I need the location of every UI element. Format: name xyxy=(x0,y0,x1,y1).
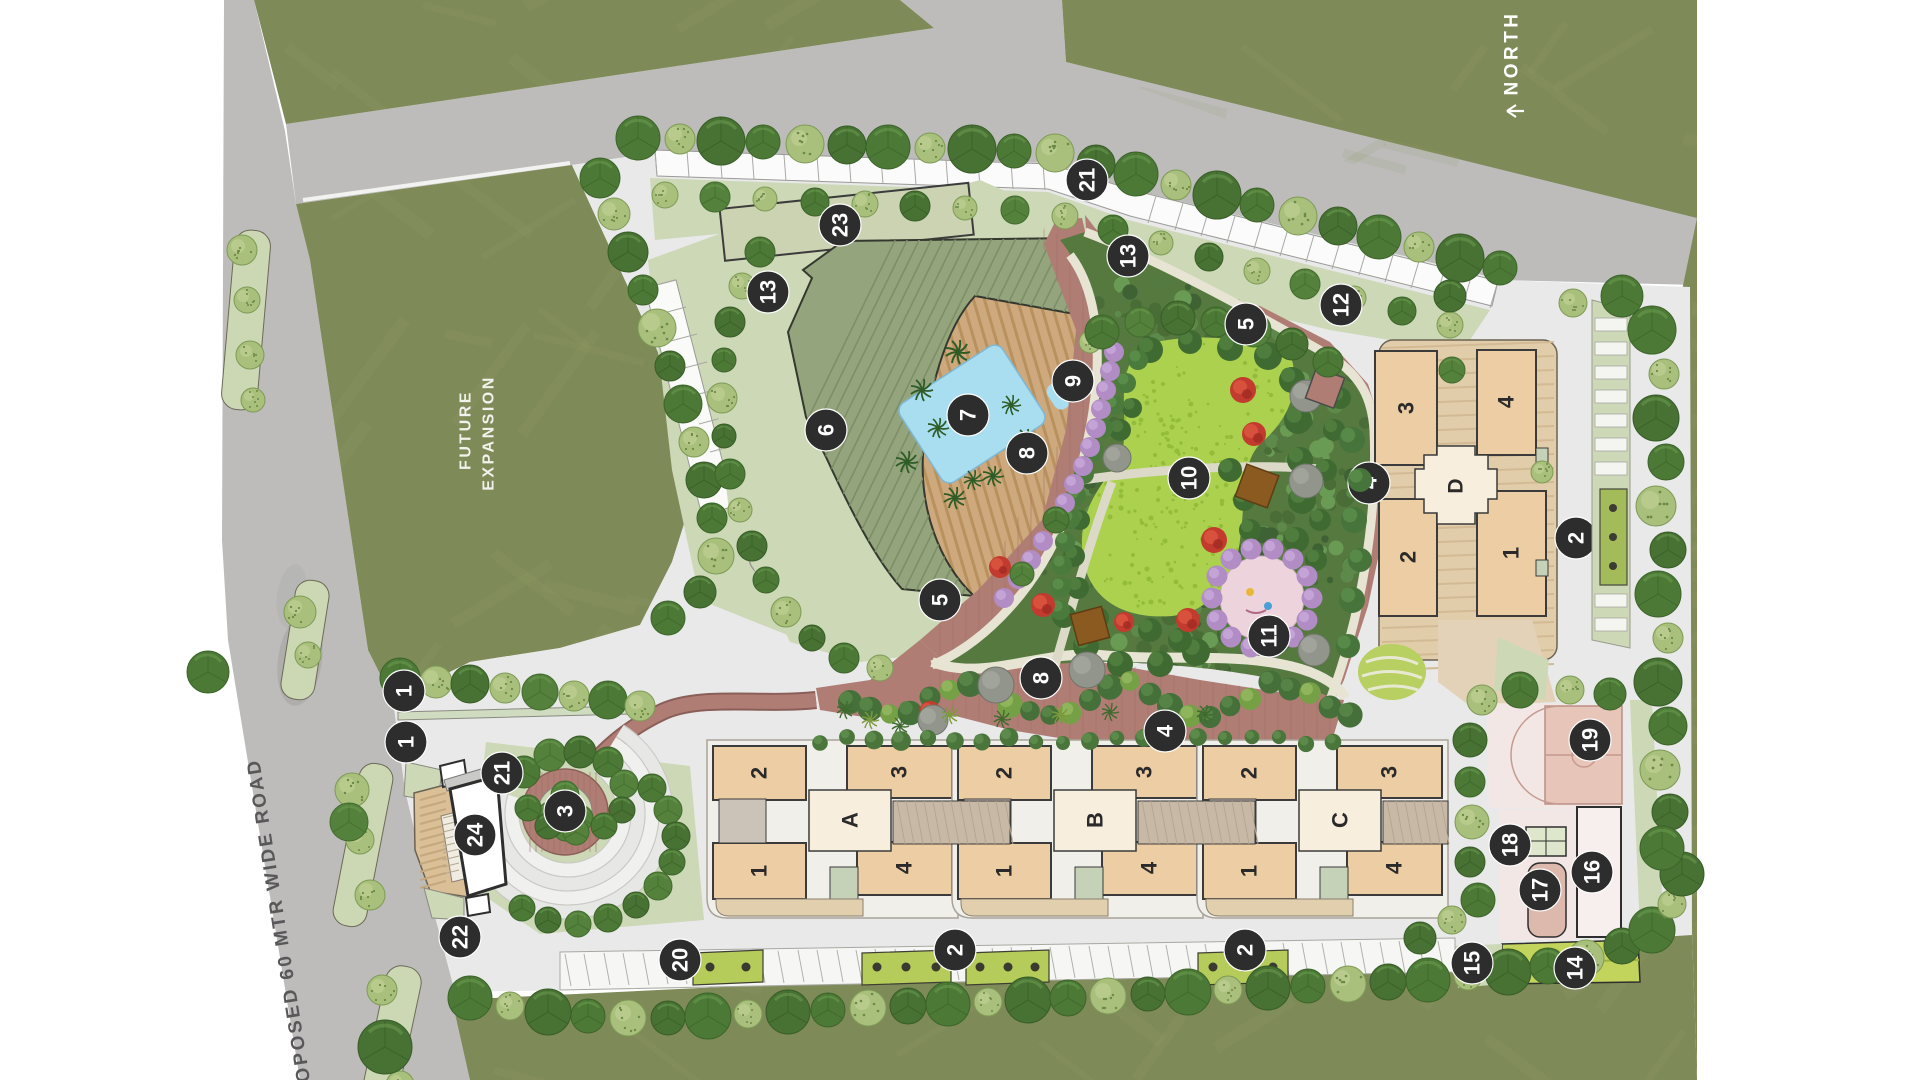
svg-text:3: 3 xyxy=(1377,766,1402,778)
svg-text:1: 1 xyxy=(392,685,417,697)
svg-text:5: 5 xyxy=(928,594,953,606)
svg-text:12: 12 xyxy=(1329,293,1354,317)
svg-text:2: 2 xyxy=(747,767,772,779)
svg-text:2: 2 xyxy=(992,767,1017,779)
svg-text:2: 2 xyxy=(943,944,968,956)
svg-text:NORTH: NORTH xyxy=(1502,10,1523,95)
svg-text:2: 2 xyxy=(1564,532,1589,544)
svg-text:9: 9 xyxy=(1061,375,1086,387)
svg-text:4: 4 xyxy=(892,861,917,874)
svg-text:A: A xyxy=(838,812,863,828)
svg-text:13: 13 xyxy=(756,280,781,304)
svg-text:6: 6 xyxy=(814,424,839,436)
svg-text:20: 20 xyxy=(668,948,693,972)
svg-text:23: 23 xyxy=(828,213,853,237)
svg-text:24: 24 xyxy=(463,822,488,847)
svg-text:5: 5 xyxy=(1234,318,1259,330)
svg-text:21: 21 xyxy=(1075,168,1100,192)
svg-text:14: 14 xyxy=(1563,955,1588,980)
svg-text:4: 4 xyxy=(1137,861,1162,874)
svg-text:4: 4 xyxy=(1153,724,1178,737)
svg-text:19: 19 xyxy=(1578,728,1603,752)
svg-text:1: 1 xyxy=(394,736,419,748)
svg-text:FUTURE: FUTURE xyxy=(458,390,475,470)
svg-text:8: 8 xyxy=(1029,672,1054,684)
svg-text:EXPANSION: EXPANSION xyxy=(481,375,498,491)
svg-text:2: 2 xyxy=(1237,767,1262,779)
svg-text:13: 13 xyxy=(1116,244,1141,268)
svg-text:1: 1 xyxy=(1499,547,1524,559)
svg-text:3: 3 xyxy=(1132,766,1157,778)
svg-text:1: 1 xyxy=(1237,865,1262,877)
svg-text:15: 15 xyxy=(1460,951,1485,975)
svg-text:2: 2 xyxy=(1233,944,1258,956)
svg-text:1: 1 xyxy=(992,865,1017,877)
svg-text:18: 18 xyxy=(1498,833,1523,857)
svg-text:2: 2 xyxy=(1396,551,1421,563)
svg-text:D: D xyxy=(1445,478,1468,493)
svg-text:22: 22 xyxy=(448,925,473,949)
svg-text:16: 16 xyxy=(1580,860,1605,884)
svg-text:3: 3 xyxy=(553,805,578,817)
svg-text:3: 3 xyxy=(1394,402,1419,414)
svg-text:B: B xyxy=(1083,812,1108,828)
svg-text:4: 4 xyxy=(1494,395,1519,408)
svg-text:1: 1 xyxy=(747,865,772,877)
svg-text:7: 7 xyxy=(956,409,981,421)
svg-text:10: 10 xyxy=(1177,466,1202,490)
svg-text:17: 17 xyxy=(1528,878,1553,902)
svg-text:4: 4 xyxy=(1382,861,1407,874)
svg-text:C: C xyxy=(1328,812,1353,828)
svg-text:11: 11 xyxy=(1257,624,1282,647)
svg-text:8: 8 xyxy=(1015,447,1040,459)
svg-text:21: 21 xyxy=(490,761,515,785)
svg-text:3: 3 xyxy=(887,766,912,778)
